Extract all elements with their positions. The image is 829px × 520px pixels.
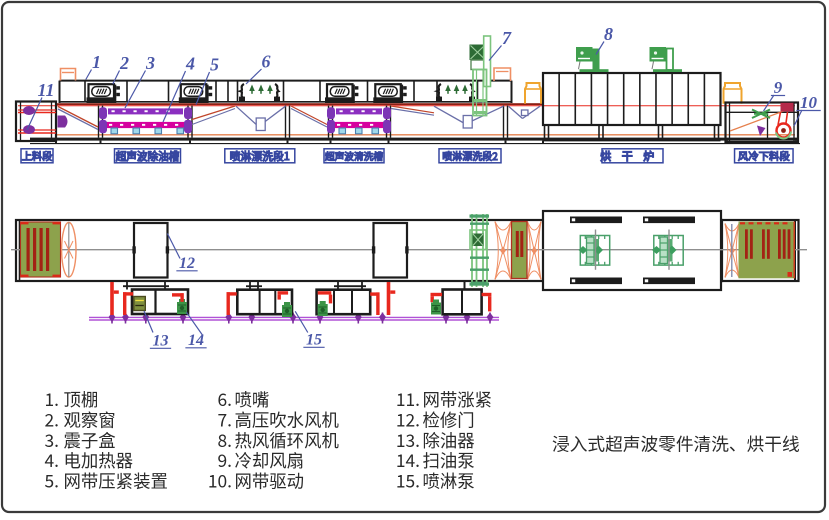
svg-text:喷淋漂洗段2: 喷淋漂洗段2 xyxy=(442,148,498,163)
svg-text:15.: 15. xyxy=(396,468,420,493)
svg-text:上料段: 上料段 xyxy=(22,148,53,163)
svg-text:8: 8 xyxy=(604,24,613,44)
svg-text:12: 12 xyxy=(179,255,195,272)
svg-text:2: 2 xyxy=(119,53,129,73)
svg-text:4: 4 xyxy=(185,54,195,74)
svg-text:烘干炉: 烘干炉 xyxy=(600,148,665,164)
svg-text:13: 13 xyxy=(153,333,169,350)
svg-text:网带驱动: 网带驱动 xyxy=(235,468,305,493)
svg-text:10.: 10. xyxy=(208,468,232,493)
svg-text:3: 3 xyxy=(145,53,155,73)
svg-text:6: 6 xyxy=(262,52,271,72)
svg-text:网带压紧装置: 网带压紧装置 xyxy=(64,468,168,493)
svg-text:浸入式超声波零件清洗、烘干线: 浸入式超声波零件清洗、烘干线 xyxy=(552,430,800,456)
svg-text:10: 10 xyxy=(800,93,818,112)
svg-text:9: 9 xyxy=(774,78,783,97)
svg-text:5.: 5. xyxy=(45,468,60,493)
svg-text:1: 1 xyxy=(92,52,101,72)
svg-text:5: 5 xyxy=(210,55,219,75)
svg-text:15: 15 xyxy=(306,332,322,349)
svg-text:11: 11 xyxy=(37,80,54,100)
svg-text:7: 7 xyxy=(502,28,512,48)
svg-text:风冷下料段: 风冷下料段 xyxy=(738,148,791,163)
svg-text:超声波除油槽: 超声波除油槽 xyxy=(115,149,180,164)
svg-text:超声波清洗槽: 超声波清洗槽 xyxy=(324,149,383,163)
svg-text:喷淋漂洗段1: 喷淋漂洗段1 xyxy=(230,148,290,164)
svg-text:喷淋泵: 喷淋泵 xyxy=(423,468,475,493)
